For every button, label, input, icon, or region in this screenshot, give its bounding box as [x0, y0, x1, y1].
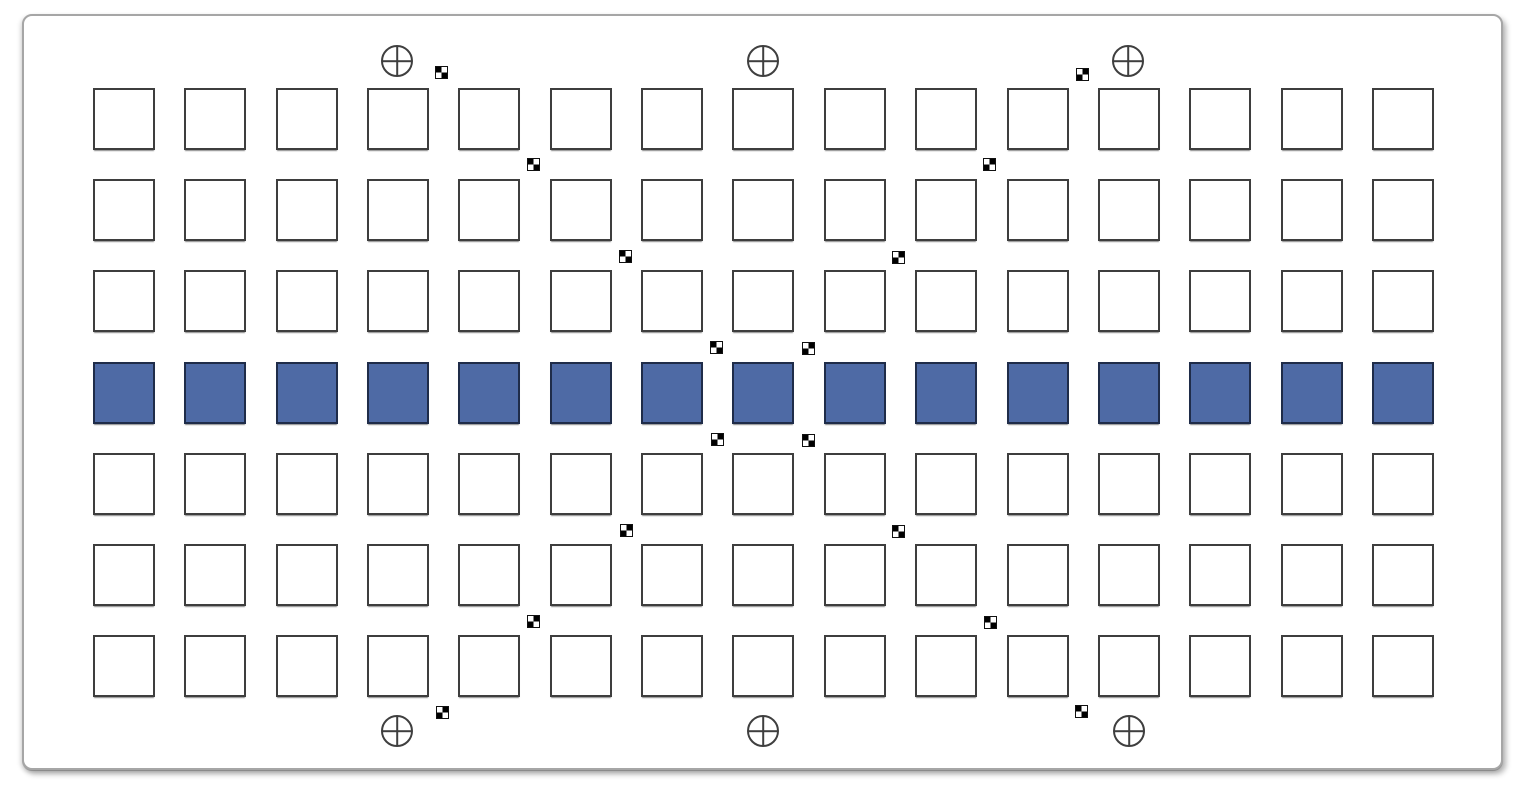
- grid-cell: [1007, 453, 1069, 515]
- grid-cell: [458, 635, 520, 697]
- crosshair-fiducial-icon: [381, 45, 413, 77]
- grid-cell: [184, 544, 246, 606]
- checker-fiducial-icon: [893, 526, 904, 537]
- grid-cell: [1281, 635, 1343, 697]
- grid-cell: [550, 453, 612, 515]
- grid-cell: [1189, 453, 1251, 515]
- checker-fiducial-icon: [437, 707, 448, 718]
- grid-cell: [1007, 635, 1069, 697]
- grid-cell: [824, 544, 886, 606]
- crosshair-fiducial-icon: [381, 715, 413, 747]
- grid-cell: [824, 635, 886, 697]
- grid-cell: [1189, 270, 1251, 332]
- grid-cell: [184, 179, 246, 241]
- grid-cell: [1007, 179, 1069, 241]
- grid-cell: [1007, 544, 1069, 606]
- grid-cell: [93, 88, 155, 150]
- grid-cell: [184, 88, 246, 150]
- grid-cell: [915, 88, 977, 150]
- checker-fiducial-icon: [1077, 69, 1088, 80]
- checker-fiducial-icon: [712, 434, 723, 445]
- grid-cell-highlighted: [1189, 362, 1251, 424]
- grid-cell: [367, 270, 429, 332]
- grid-cell: [93, 179, 155, 241]
- grid-cell: [550, 179, 612, 241]
- grid-cell-highlighted: [1007, 362, 1069, 424]
- checker-fiducial-icon: [1076, 706, 1087, 717]
- grid-cell: [276, 270, 338, 332]
- checker-fiducial-icon: [620, 251, 631, 262]
- grid-cell: [1007, 88, 1069, 150]
- grid-cell: [458, 88, 520, 150]
- grid-cell: [1281, 453, 1343, 515]
- grid-cell: [641, 453, 703, 515]
- grid-cell: [1281, 88, 1343, 150]
- grid-cell: [1281, 270, 1343, 332]
- grid-cell-highlighted: [915, 362, 977, 424]
- checker-fiducial-icon: [893, 252, 904, 263]
- grid-cell: [1007, 270, 1069, 332]
- checker-fiducial-icon: [436, 67, 447, 78]
- checker-fiducial-icon: [528, 616, 539, 627]
- grid-cell: [915, 179, 977, 241]
- grid-cell: [824, 179, 886, 241]
- grid-cell: [367, 179, 429, 241]
- grid-cell: [1372, 544, 1434, 606]
- grid-cell-highlighted: [641, 362, 703, 424]
- grid-cell: [550, 635, 612, 697]
- checker-fiducial-icon: [985, 617, 996, 628]
- grid-cell: [641, 544, 703, 606]
- grid-cell: [1189, 544, 1251, 606]
- grid-cell: [458, 270, 520, 332]
- grid-cell: [458, 544, 520, 606]
- grid-cell: [184, 453, 246, 515]
- grid-cell-highlighted: [732, 362, 794, 424]
- diagram-canvas: [0, 0, 1524, 796]
- crosshair-fiducial-icon: [1113, 715, 1145, 747]
- grid-cell: [458, 179, 520, 241]
- grid-cell: [1372, 179, 1434, 241]
- grid-cell: [641, 635, 703, 697]
- grid-cell-highlighted: [550, 362, 612, 424]
- grid-cell: [1281, 544, 1343, 606]
- grid-cell: [641, 270, 703, 332]
- grid-cell: [276, 544, 338, 606]
- checker-fiducial-icon: [711, 342, 722, 353]
- grid-cell: [732, 88, 794, 150]
- grid-cell: [1372, 635, 1434, 697]
- grid-cell: [1098, 270, 1160, 332]
- grid-cell: [367, 635, 429, 697]
- grid-cell-highlighted: [367, 362, 429, 424]
- crosshair-fiducial-icon: [1112, 45, 1144, 77]
- grid-cell: [367, 88, 429, 150]
- grid-cell: [1098, 88, 1160, 150]
- grid-cell-highlighted: [93, 362, 155, 424]
- grid-cell: [732, 179, 794, 241]
- checker-fiducial-icon: [621, 525, 632, 536]
- grid-cell: [915, 635, 977, 697]
- grid-cell: [1189, 88, 1251, 150]
- grid-cell: [824, 88, 886, 150]
- grid-cell: [93, 270, 155, 332]
- grid-cell: [1189, 635, 1251, 697]
- grid-cell: [732, 635, 794, 697]
- grid-cell: [1372, 453, 1434, 515]
- grid-cell: [276, 88, 338, 150]
- checker-fiducial-icon: [528, 159, 539, 170]
- grid-cell: [1098, 453, 1160, 515]
- checker-fiducial-icon: [803, 343, 814, 354]
- grid-cell-highlighted: [1281, 362, 1343, 424]
- grid-cell: [184, 635, 246, 697]
- grid-cell: [824, 270, 886, 332]
- grid-cell: [915, 453, 977, 515]
- grid-cell: [641, 88, 703, 150]
- grid-cell: [915, 270, 977, 332]
- grid-cell: [1098, 635, 1160, 697]
- grid-cell: [550, 544, 612, 606]
- grid-cell-highlighted: [824, 362, 886, 424]
- grid-cell: [732, 453, 794, 515]
- grid-cell: [1281, 179, 1343, 241]
- grid-cell: [732, 270, 794, 332]
- grid-cell-highlighted: [458, 362, 520, 424]
- checker-fiducial-icon: [984, 159, 995, 170]
- grid-cell: [641, 179, 703, 241]
- grid-cell: [1098, 544, 1160, 606]
- grid-cell: [1189, 179, 1251, 241]
- grid-cell: [93, 453, 155, 515]
- grid-cell: [276, 453, 338, 515]
- grid-cell: [458, 453, 520, 515]
- grid-cell: [915, 544, 977, 606]
- grid-cell: [93, 635, 155, 697]
- grid-cell-highlighted: [184, 362, 246, 424]
- grid-cell: [276, 179, 338, 241]
- grid-cell: [367, 453, 429, 515]
- grid-cell: [550, 88, 612, 150]
- grid-cell: [1098, 179, 1160, 241]
- grid-cell: [276, 635, 338, 697]
- grid-cell: [1372, 88, 1434, 150]
- grid-cell: [824, 453, 886, 515]
- grid-cell-highlighted: [1098, 362, 1160, 424]
- grid-cell: [93, 544, 155, 606]
- grid-cell: [550, 270, 612, 332]
- grid-cell: [367, 544, 429, 606]
- grid-cell-highlighted: [276, 362, 338, 424]
- checker-fiducial-icon: [803, 435, 814, 446]
- grid-cell-highlighted: [1372, 362, 1434, 424]
- grid-cell: [184, 270, 246, 332]
- grid-cell: [1372, 270, 1434, 332]
- crosshair-fiducial-icon: [747, 715, 779, 747]
- grid-cell: [732, 544, 794, 606]
- crosshair-fiducial-icon: [747, 45, 779, 77]
